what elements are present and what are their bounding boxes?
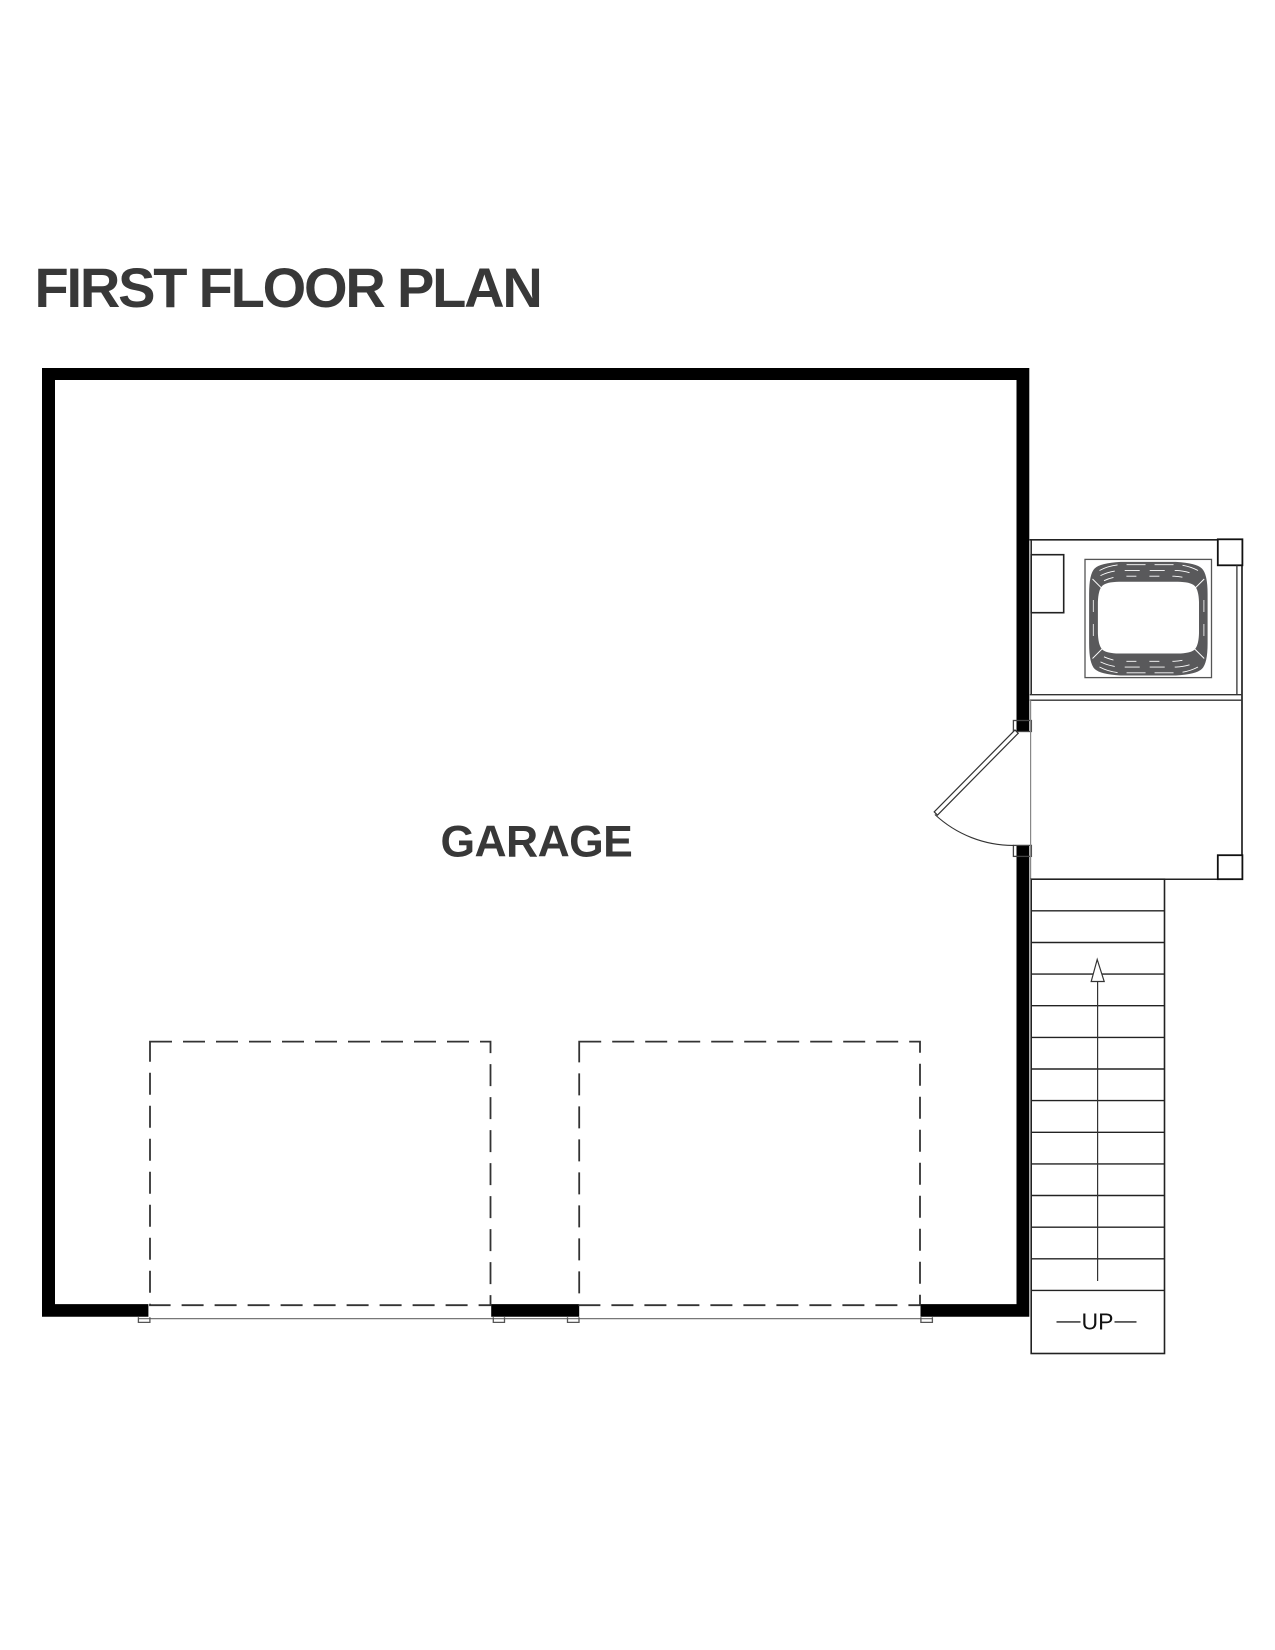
svg-text:GARAGE: GARAGE (441, 818, 633, 867)
svg-text:FIRST FLOOR PLAN: FIRST FLOOR PLAN (35, 256, 541, 319)
svg-text:UP: UP (1082, 1309, 1114, 1335)
